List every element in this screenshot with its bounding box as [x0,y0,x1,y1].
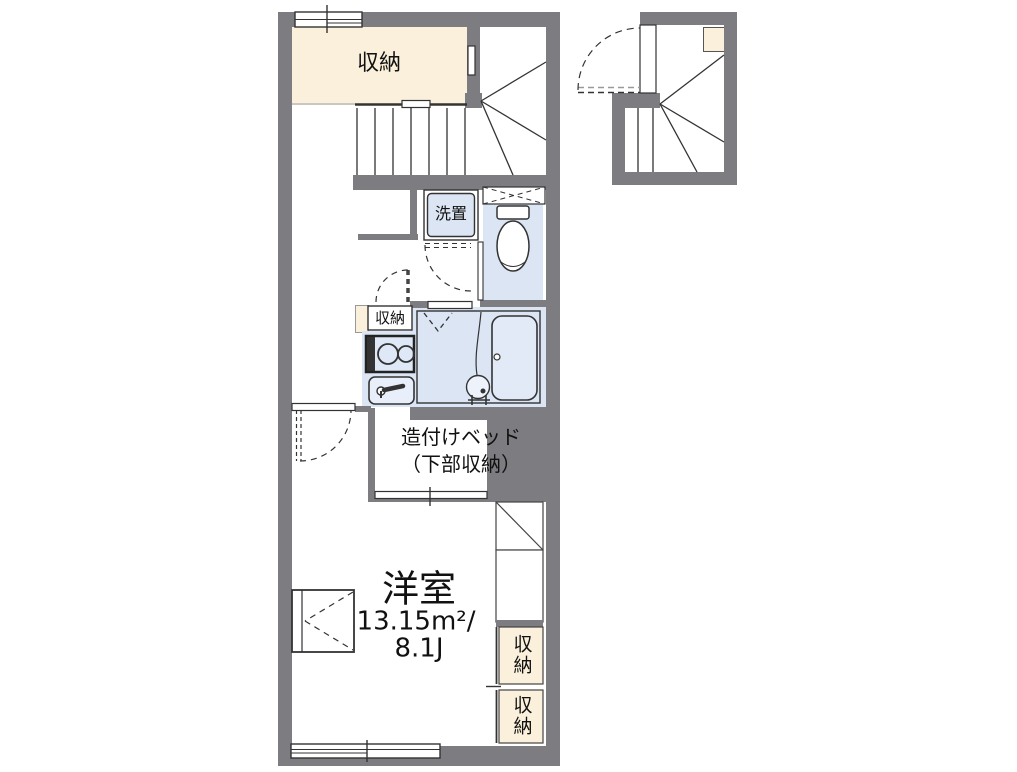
main-room-name: 洋室 [382,570,456,611]
window-bottom [291,740,440,762]
main-room-area: 13.15m²/ [357,608,476,637]
toilet-icon [497,206,529,271]
bath-door-bar [428,302,472,309]
stairs-winder-entry [660,55,724,172]
main-room-tatami: 8.1J [394,635,443,664]
bed-label-line1: 造付けベッド [401,426,521,448]
bed-storage-door [375,487,487,506]
sink-icon [369,377,414,404]
washer-label: 洗置 [435,205,467,223]
stairs-straight-entry [638,108,653,172]
bath-room [417,302,540,406]
storage-lower-label: 収納 [511,695,532,737]
window-top [295,5,362,33]
closet-door-right [468,46,475,75]
window-left [292,590,354,652]
stairs-straight-main [357,108,465,175]
plan-linework [0,0,1017,772]
closet-label: 収納 [357,52,401,76]
floor-plan: 収納 洗置 収納 造付けベッド （下部収納） 洋室 13.15m²/ 8.1J … [0,0,1017,772]
stairs-winder-main [481,62,546,175]
toilet-left-wall [478,242,483,300]
vent-hatch [483,187,545,204]
bedroom-door [292,404,355,462]
washbasin-icon [467,376,491,406]
entry-door-arc [578,28,640,90]
washer-track [425,244,471,248]
stove-icon [366,336,414,372]
closet-bottom-door [292,101,467,108]
bedroom-door-bar [292,404,355,411]
entry-unit [578,25,724,172]
entry-door-frame [640,25,656,93]
storage-upper-label: 収納 [511,634,532,676]
kitchen-storage-label: 収納 [375,310,405,327]
bed-label-line2: （下部収納） [401,453,521,475]
toilet-door-arc [425,245,471,291]
corridor-door [376,270,408,302]
